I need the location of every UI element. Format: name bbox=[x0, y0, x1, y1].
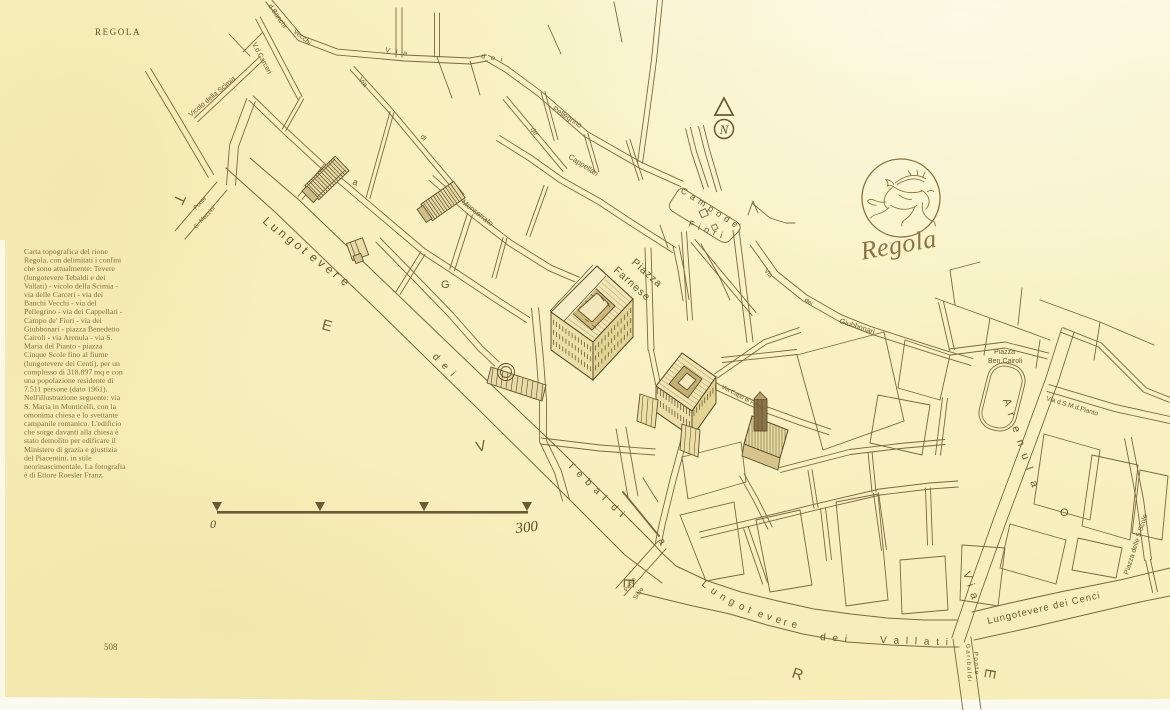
svg-text:O: O bbox=[1060, 507, 1069, 519]
svg-text:300: 300 bbox=[514, 519, 540, 537]
svg-text:508: 508 bbox=[104, 642, 118, 652]
svg-text:REGOLA: REGOLA bbox=[95, 27, 141, 37]
svg-text:G: G bbox=[441, 279, 450, 291]
svg-text:d e i: d e i bbox=[820, 632, 850, 645]
svg-text:è di Ettore Roesler Franz.: è di Ettore Roesler Franz. bbox=[24, 471, 104, 480]
svg-text:Piazza: Piazza bbox=[994, 349, 1015, 356]
svg-text:0: 0 bbox=[210, 517, 216, 531]
svg-text:P o n t e: P o n t e bbox=[972, 652, 979, 675]
svg-text:N: N bbox=[719, 122, 730, 137]
svg-text:Ben.Cairoli: Ben.Cairoli bbox=[988, 358, 1023, 365]
